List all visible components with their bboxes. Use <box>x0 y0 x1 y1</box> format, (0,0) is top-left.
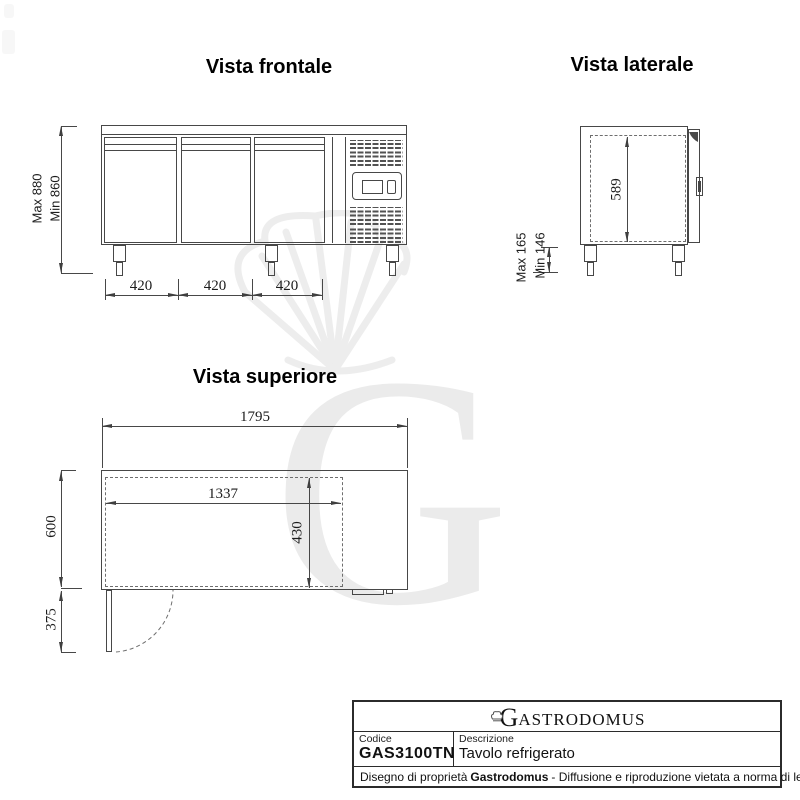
side-leg-max-label: Max 165 <box>514 208 529 308</box>
side-view-title: Vista laterale <box>552 54 712 77</box>
arrow-down-icon <box>625 232 629 242</box>
front-worktop-line <box>101 134 407 135</box>
top-width-dim-line <box>102 426 407 427</box>
top-plan-fitting <box>352 589 384 595</box>
control-panel-button <box>387 180 396 194</box>
arrow-right-icon <box>331 501 341 505</box>
description-cell: Descrizione Tavolo refrigerato <box>454 732 780 766</box>
vent-grille-bottom <box>350 207 403 225</box>
extension-line <box>322 279 323 300</box>
front-door-2 <box>181 137 251 243</box>
side-leg-min-label: Min 146 <box>533 206 548 306</box>
arrow-left-icon <box>102 424 112 428</box>
front-door-3 <box>254 137 325 243</box>
door-hinge-icon <box>689 132 699 143</box>
top-plan-fitting <box>386 589 393 594</box>
leg-foot <box>675 262 682 276</box>
leg <box>386 245 399 262</box>
description-label: Descrizione <box>459 733 780 745</box>
top-inner-depth: 430 <box>290 503 307 563</box>
logo-text: ASTRODOMUS <box>518 711 645 729</box>
corner-artifact <box>4 4 14 18</box>
extension-line <box>61 126 77 127</box>
arrow-down-icon <box>307 578 311 588</box>
arrow-up-icon <box>307 478 311 488</box>
leg-foot <box>389 262 396 276</box>
vent-grille-bottom <box>350 227 403 243</box>
copyright-prefix: Disegno di proprietà <box>360 770 467 784</box>
leg <box>113 245 126 262</box>
door-handle-recess <box>255 144 324 151</box>
door-handle-recess <box>105 144 176 151</box>
front-width-dim-line <box>105 295 322 296</box>
top-door-swing: 375 <box>44 590 61 650</box>
arrow-down-icon <box>59 577 63 587</box>
front-divider-line <box>332 137 333 243</box>
top-total-width: 1795 <box>225 409 285 426</box>
corner-artifact <box>2 30 15 54</box>
arrow-right-icon <box>397 424 407 428</box>
arrow-up-icon <box>625 137 629 147</box>
code-label: Codice <box>359 733 453 745</box>
top-depth-dim-line <box>61 471 62 587</box>
side-inner-compartment <box>590 135 686 242</box>
front-door-width-2: 420 <box>185 278 245 295</box>
door-handle-recess <box>182 144 250 151</box>
logo: GASTRODOMUS <box>354 702 780 732</box>
chef-hat-icon <box>490 710 504 722</box>
top-inner-width: 1337 <box>193 486 253 503</box>
leg-foot <box>116 262 123 276</box>
extension-line <box>61 273 93 274</box>
door-swing-arc <box>100 580 190 670</box>
technical-drawing-canvas: G Vista frontale Max 880 Min 860 <box>0 0 800 800</box>
side-inner-height: 589 <box>609 160 626 220</box>
side-inner-dim-line <box>627 137 628 242</box>
leg <box>265 245 278 262</box>
front-height-max-label: Max 880 <box>30 149 45 249</box>
top-inner-depth-dim-line <box>309 478 310 588</box>
copyright-brand: Gastrodomus <box>470 770 548 784</box>
copyright-notice: Disegno di proprietà Gastrodomus - Diffu… <box>354 767 780 786</box>
front-door-1 <box>104 137 177 243</box>
arrow-up-icon <box>547 247 551 257</box>
front-door-width-1: 420 <box>111 278 171 295</box>
description-value: Tavolo refrigerato <box>459 745 780 763</box>
side-door-handle-inner <box>698 181 701 192</box>
code-cell: Codice GAS3100TN <box>354 732 454 766</box>
extension-line <box>61 470 76 471</box>
front-door-width-3: 420 <box>257 278 317 295</box>
extension-line <box>407 418 408 468</box>
leg-foot <box>268 262 275 276</box>
title-block: GASTRODOMUS Codice GAS3100TN Descrizione… <box>352 700 782 788</box>
front-divider-line <box>345 137 346 243</box>
code-value: GAS3100TN <box>359 745 453 763</box>
leg <box>584 245 597 262</box>
arrow-left-icon <box>106 501 116 505</box>
arrow-down-icon <box>547 262 551 272</box>
top-depth: 600 <box>44 497 61 557</box>
leg-foot <box>587 262 594 276</box>
arrow-up-icon <box>59 126 63 136</box>
title-block-fields: Codice GAS3100TN Descrizione Tavolo refr… <box>354 732 780 767</box>
top-view-title: Vista superiore <box>185 366 345 389</box>
copyright-suffix: - Diffusione e riproduzione vietata a no… <box>551 770 800 784</box>
front-view-title: Vista frontale <box>159 56 379 79</box>
vent-grille-top <box>350 140 403 166</box>
arrow-down-icon <box>59 263 63 273</box>
leg <box>672 245 685 262</box>
control-panel-display <box>362 180 383 194</box>
front-height-min-label: Min 860 <box>48 149 63 249</box>
arrow-up-icon <box>59 471 63 481</box>
extension-line <box>61 588 82 589</box>
extension-line <box>61 652 76 653</box>
